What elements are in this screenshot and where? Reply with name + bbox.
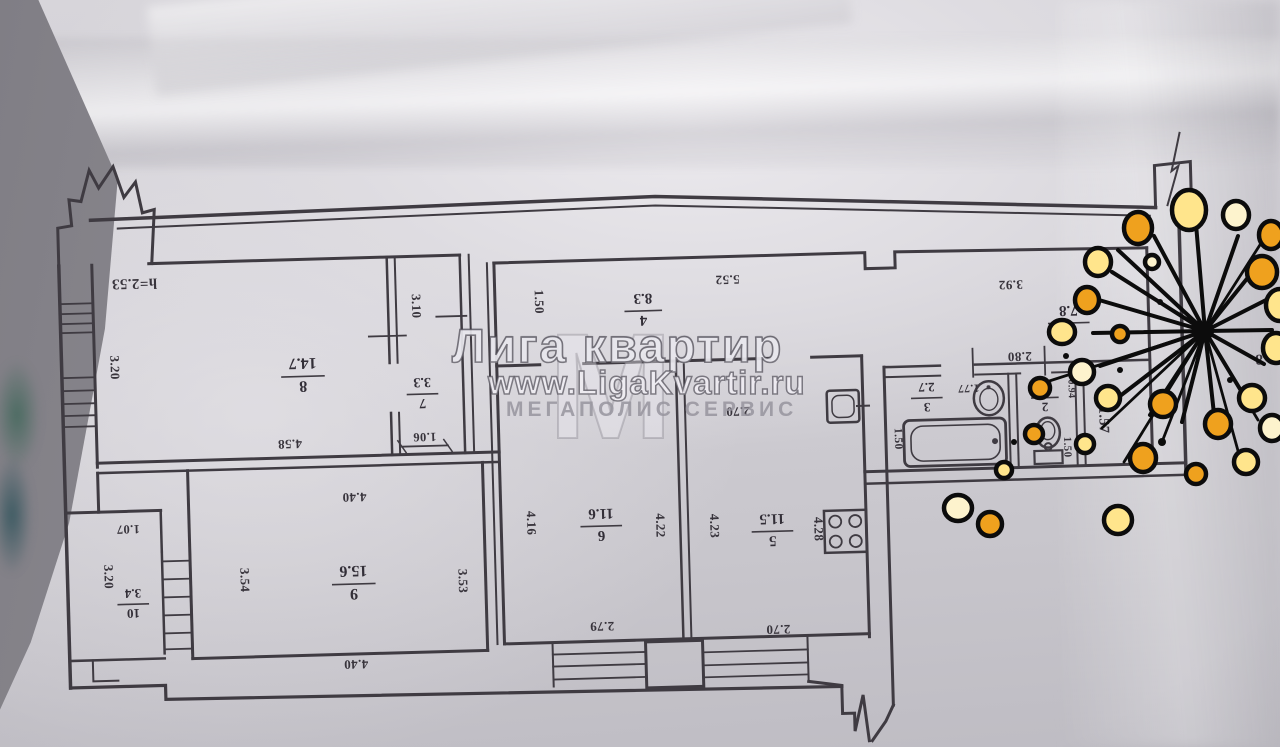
stove-icon: [824, 510, 867, 553]
dim-label: 5.52: [715, 272, 740, 288]
photo-of-floor-plan: h=2.533.204.583.101.061.505.522.703.922.…: [0, 0, 1280, 747]
svg-text:3.4: 3.4: [124, 586, 141, 601]
svg-text:2.7: 2.7: [918, 380, 935, 395]
svg-text:2: 2: [1042, 400, 1049, 415]
room-label: 73.3: [407, 374, 438, 411]
svg-text:15.6: 15.6: [339, 562, 367, 580]
break-line-icon: [56, 166, 156, 267]
svg-text:9: 9: [350, 585, 358, 602]
dim-label: 2.70: [766, 622, 791, 638]
entry-door-notch: [494, 245, 1147, 279]
dim-label: 4.16: [524, 511, 540, 536]
svg-text:10: 10: [127, 606, 140, 621]
svg-text:3: 3: [923, 400, 930, 415]
room-label: 103.4: [118, 586, 149, 622]
dim-label: 1.50: [892, 428, 905, 450]
dim-label: 2.80: [1007, 349, 1032, 365]
svg-text:11.6: 11.6: [587, 505, 613, 522]
svg-text:11.5: 11.5: [759, 510, 785, 527]
dim-label: 4.22: [653, 513, 669, 538]
dim-label: 3.54: [237, 568, 253, 593]
room-label: 611.6: [581, 505, 622, 544]
room-label: 915.6: [332, 561, 375, 602]
svg-text:14.7: 14.7: [288, 354, 316, 372]
dim-label: 3.20: [101, 565, 117, 590]
dim-label: 1.07: [116, 522, 140, 537]
dim-label: 4.23: [707, 514, 723, 539]
dim-label: 4.28: [811, 517, 827, 542]
svg-text:5: 5: [769, 532, 777, 548]
svg-text:3.3: 3.3: [413, 374, 431, 389]
dim-label: 1.06: [413, 430, 437, 445]
watermark-subtitle: МЕГАПОЛИС СЕРВИС: [506, 398, 797, 422]
dim-label: 3.10: [409, 294, 425, 319]
dim-label: 3.20: [107, 355, 123, 380]
dim-label: 1.50: [532, 289, 548, 314]
bathtub-icon: [903, 418, 1006, 467]
dim-label: 1.50: [1061, 437, 1074, 458]
break-line-icon: [842, 686, 870, 742]
dim-label: 3.92: [998, 277, 1023, 293]
dim-label: 1.77: [958, 382, 980, 395]
svg-text:6: 6: [597, 527, 605, 543]
room-label: 32.7: [911, 380, 942, 416]
svg-text:8: 8: [299, 377, 307, 394]
dim-label: 4.58: [277, 436, 302, 452]
room-label: 511.5: [752, 510, 793, 549]
dim-label: h=2.53: [111, 274, 157, 291]
dim-label: 3.53: [455, 569, 471, 594]
watermark-url: www.LigaKvartir.ru: [488, 364, 806, 402]
dim-label: 2.79: [590, 619, 615, 635]
room-label: 814.7: [281, 354, 324, 395]
dim-label: 4.40: [342, 490, 367, 506]
svg-text:7: 7: [419, 395, 426, 410]
dim-label: 4.40: [344, 657, 369, 673]
